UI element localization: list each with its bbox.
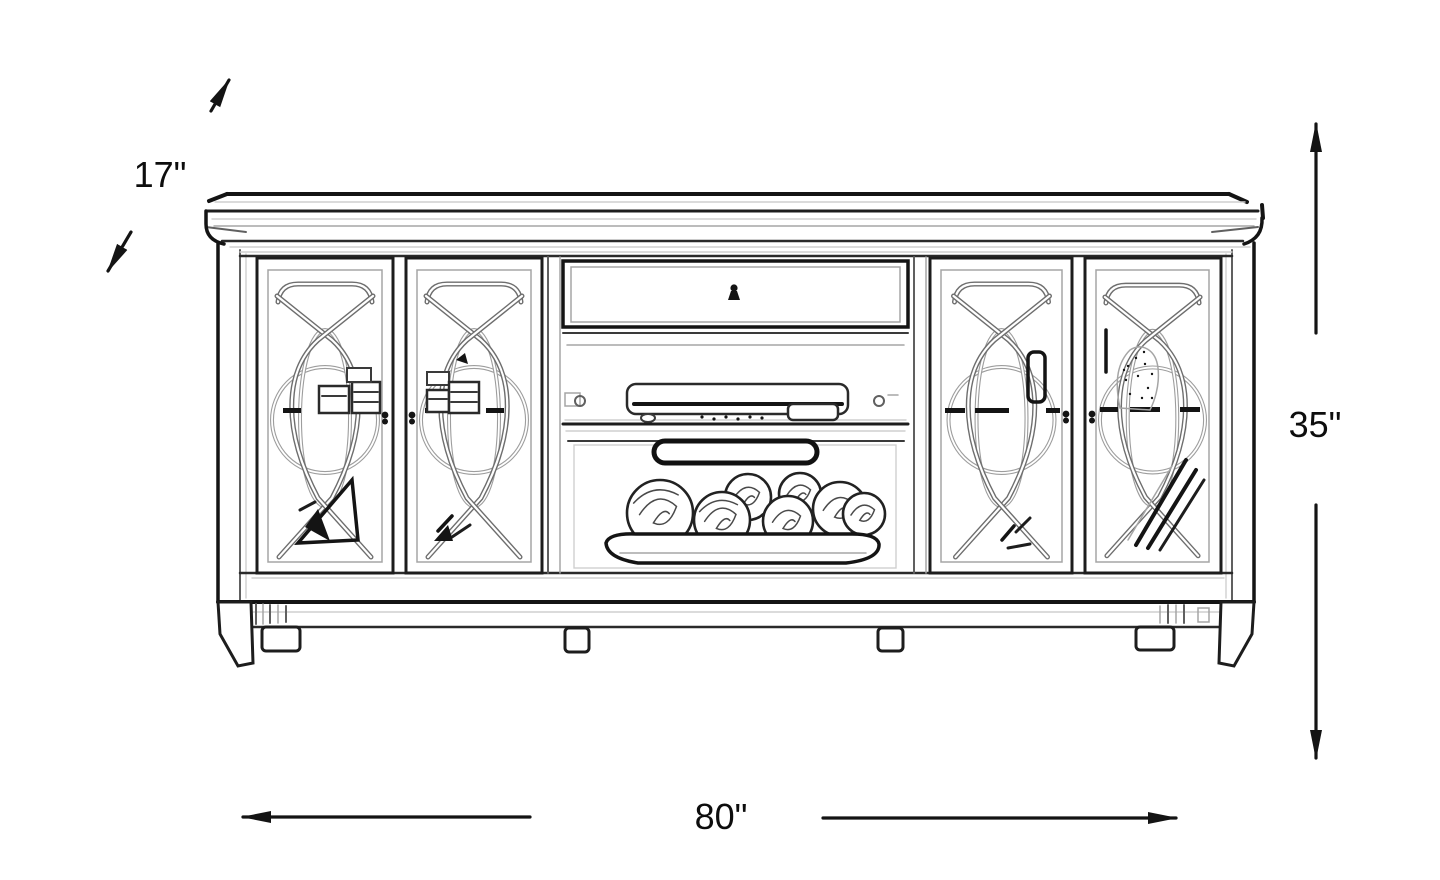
console-leg-left: [218, 602, 253, 666]
glass-door-3: [930, 258, 1072, 573]
center-drawer: [563, 261, 908, 345]
soundbar: [627, 384, 848, 422]
height-dimension: 35": [1289, 124, 1342, 758]
depth-label: 17": [134, 154, 187, 195]
shelf-peg-right: [874, 395, 898, 406]
height-label: 35": [1289, 404, 1342, 445]
media-shelf: [563, 384, 908, 441]
width-dimension: 80": [243, 796, 1176, 837]
decor-tray: [606, 534, 879, 563]
depth-arrow-up-right: [211, 80, 229, 111]
drawer-keyhole: [728, 284, 740, 300]
base-hatching-right: [1160, 605, 1209, 623]
console-drawing: [206, 194, 1263, 666]
furniture-dimension-diagram: 17" 35" 80": [0, 0, 1440, 880]
width-label: 80": [695, 796, 748, 837]
door-knobs-left: [382, 412, 416, 425]
glass-door-2: [406, 258, 542, 573]
shelf-peg-left: [565, 393, 585, 406]
console-feet: [262, 627, 1174, 652]
glass-door-1: [257, 258, 393, 573]
lower-compartment: [574, 441, 896, 568]
glass-door-4: [1085, 258, 1221, 573]
leaning-books: [1128, 460, 1204, 550]
console-leg-right: [1219, 602, 1254, 666]
console-top-cornice: [206, 194, 1263, 247]
compartment-handle: [654, 441, 817, 463]
door-knobs-right: [1063, 411, 1096, 424]
depth-dimension: 17": [108, 80, 229, 271]
base-hatching-left: [256, 604, 286, 624]
diagram-canvas: 17" 35" 80": [0, 0, 1440, 880]
depth-arrow-down-left: [108, 232, 131, 271]
